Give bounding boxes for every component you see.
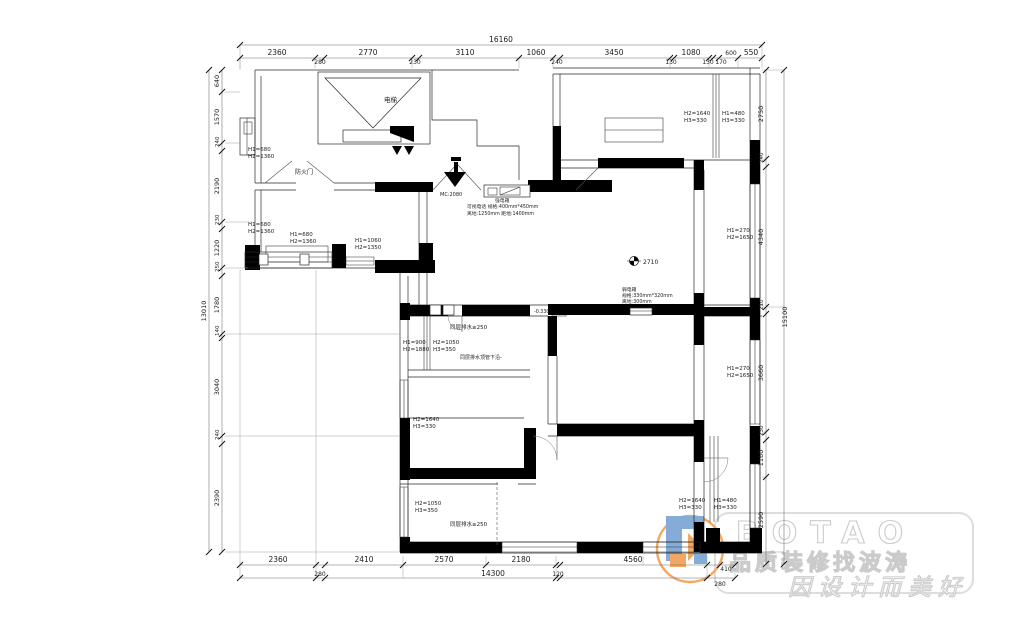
dim-left-seg: 1570 bbox=[213, 109, 221, 126]
dim-bottom-seg: 2180 bbox=[511, 555, 530, 564]
fire-door-label: 防火门 bbox=[295, 168, 313, 176]
window-tag-line: H1=680 bbox=[248, 222, 271, 228]
dim-bottom-seg: 2570 bbox=[434, 555, 453, 564]
watermark-slogan2: 因设计而美好 bbox=[788, 575, 968, 601]
window bbox=[502, 542, 577, 552]
dim-left-seg: 230 bbox=[215, 214, 221, 225]
window bbox=[400, 380, 408, 418]
dim-top-seg: 170 bbox=[715, 59, 727, 66]
window-tag-line: H2=1360 bbox=[290, 239, 317, 245]
window-tag-line: H3=330 bbox=[413, 424, 436, 430]
window-tag-line: H1=680 bbox=[248, 147, 271, 153]
ceiling-height-label: 2710 bbox=[643, 259, 658, 266]
dim-top-seg: 240 bbox=[551, 59, 563, 66]
window-tag-line: H1=480 bbox=[714, 498, 737, 504]
dim-bottom-seg: 410 bbox=[720, 566, 732, 573]
window-tag-line: H1=270 bbox=[727, 228, 750, 234]
dim-bottom-seg: 14300 bbox=[481, 569, 505, 578]
window-tag-line: H3=330 bbox=[679, 505, 702, 511]
dim-right-seg: 2750 bbox=[757, 106, 765, 123]
window-tag-line: H3=350 bbox=[415, 508, 438, 514]
window-tag-line: H1=1060 bbox=[355, 238, 382, 244]
dim-bottom-seg: 280 bbox=[314, 571, 326, 578]
dim-left-seg: 640 bbox=[213, 75, 221, 87]
dim-top-seg: 600 bbox=[725, 50, 737, 57]
floor-plan-svg: BOTAO 品质装修找波涛 因设计而美好 bbox=[0, 0, 1011, 628]
drain-note-bottom: 同层排水≥250 bbox=[450, 520, 488, 528]
window-tag-line: H3=330 bbox=[722, 118, 745, 124]
dim-bottom-seg: 2360 bbox=[268, 555, 287, 564]
window-tag-line: H2=1640 bbox=[679, 498, 706, 504]
stair-symbol bbox=[390, 126, 414, 142]
watermark-slogan1: 品质装修找波涛 bbox=[729, 550, 911, 576]
dim-top-seg: 1080 bbox=[681, 48, 700, 57]
dim-top-seg: 1060 bbox=[526, 48, 545, 57]
dim-right-seg: 1160 bbox=[757, 450, 765, 467]
dim-top-seg: 230 bbox=[409, 59, 421, 66]
window-tag-line: H2=1350 bbox=[355, 245, 382, 251]
dim-left-seg: 1220 bbox=[213, 240, 221, 257]
window-tag-line: H2=1360 bbox=[248, 154, 275, 160]
dim-bottom-seg: 120 bbox=[552, 571, 564, 578]
level-marker: -0.330 bbox=[534, 309, 549, 315]
dim-top-seg: 280 bbox=[314, 59, 326, 66]
dim-left-seg: 140 bbox=[215, 325, 221, 336]
dim-top-seg: 2360 bbox=[267, 48, 286, 57]
dim-right-seg: 210 bbox=[759, 299, 765, 310]
window-tag-line: H1=270 bbox=[727, 366, 750, 372]
dim-left-seg: 2190 bbox=[213, 178, 221, 195]
window-tag-line: H1=680 bbox=[290, 232, 313, 238]
dim-top-total: 16160 bbox=[489, 35, 513, 44]
weakbox-note-line1: 规格:330mm*320mm bbox=[622, 292, 673, 299]
window-tag-line: H1=480 bbox=[722, 111, 745, 117]
window-tag-line: H2=1640 bbox=[413, 417, 440, 423]
dim-top-seg: 130 bbox=[665, 59, 677, 66]
dim-right-seg: 4340 bbox=[757, 229, 765, 246]
weakbox-note-line2: 离地:300mm bbox=[622, 298, 652, 305]
entry-door-label: MC:2080 bbox=[440, 192, 462, 198]
dim-left-seg: 250 bbox=[215, 261, 221, 272]
window-tag-line: H2=1050 bbox=[433, 340, 460, 346]
dim-top-seg: 3450 bbox=[604, 48, 623, 57]
window-tag-line: H2=1360 bbox=[248, 229, 275, 235]
intercom-note-title: 强电箱 bbox=[495, 197, 510, 204]
ceiling-height-symbol bbox=[627, 257, 641, 266]
dim-right-seg: 240 bbox=[759, 152, 765, 163]
dim-right-seg: 3660 bbox=[757, 365, 765, 382]
window-tag-line: H3=350 bbox=[433, 347, 456, 353]
window-tag-line: H2=1650 bbox=[727, 373, 754, 379]
floor-plan-sheet: BOTAO 品质装修找波涛 因设计而美好 bbox=[0, 0, 1011, 628]
dim-left-seg: 240 bbox=[215, 136, 221, 147]
window-tag-line: H3=330 bbox=[684, 118, 707, 124]
intercom-note-line2: 离地:1250mm 距地:1400mm bbox=[467, 210, 534, 217]
dim-right-seg: 2590 bbox=[757, 512, 765, 529]
window bbox=[400, 487, 408, 537]
window-tag-line: H2=1650 bbox=[727, 235, 754, 241]
drain-note-mid: 同层排水顶管下沿- bbox=[460, 354, 502, 361]
entry-arrow-icon bbox=[444, 157, 466, 187]
weakbox-note-title: 弱电箱 bbox=[622, 286, 637, 293]
dim-bottom-seg: 280 bbox=[714, 581, 726, 588]
window-tag-line: H2=1640 bbox=[684, 111, 711, 117]
dim-right-total: 15100 bbox=[781, 307, 789, 328]
dim-left-seg: 1780 bbox=[213, 297, 221, 314]
watermark: BOTAO 品质装修找波涛 因设计而美好 bbox=[657, 513, 973, 601]
intercom-note-line1: 可视电话 规格:400mm*450mm bbox=[467, 203, 539, 210]
window-tag-line: H1=900 bbox=[403, 340, 426, 346]
intercom-fixture bbox=[484, 185, 530, 197]
window bbox=[346, 257, 374, 265]
elevator-label: 电梯 bbox=[384, 95, 398, 104]
dim-left-total: 13010 bbox=[200, 301, 208, 322]
dim-top-seg: 3110 bbox=[455, 48, 474, 57]
dim-bottom-seg: 4560 bbox=[623, 555, 642, 564]
dim-left-seg: 240 bbox=[215, 429, 221, 440]
dim-top-seg: 130 bbox=[702, 59, 714, 66]
dim-left-seg: 2390 bbox=[213, 490, 221, 507]
drain-note-top: 同层排水≥250 bbox=[450, 323, 488, 331]
window-tag-line: H2=1050 bbox=[415, 501, 442, 507]
window-tag-line: H2=1880 bbox=[403, 347, 430, 353]
dim-right-seg: 230 bbox=[759, 425, 765, 436]
window bbox=[713, 74, 719, 158]
window-tag-line: H3=330 bbox=[714, 505, 737, 511]
dim-top-seg: 550 bbox=[744, 48, 759, 57]
dim-top-seg: 2770 bbox=[358, 48, 377, 57]
dim-bottom-seg: 2410 bbox=[354, 555, 373, 564]
dim-left-seg: 3040 bbox=[213, 379, 221, 396]
weak-current-box-fixture bbox=[630, 308, 652, 315]
